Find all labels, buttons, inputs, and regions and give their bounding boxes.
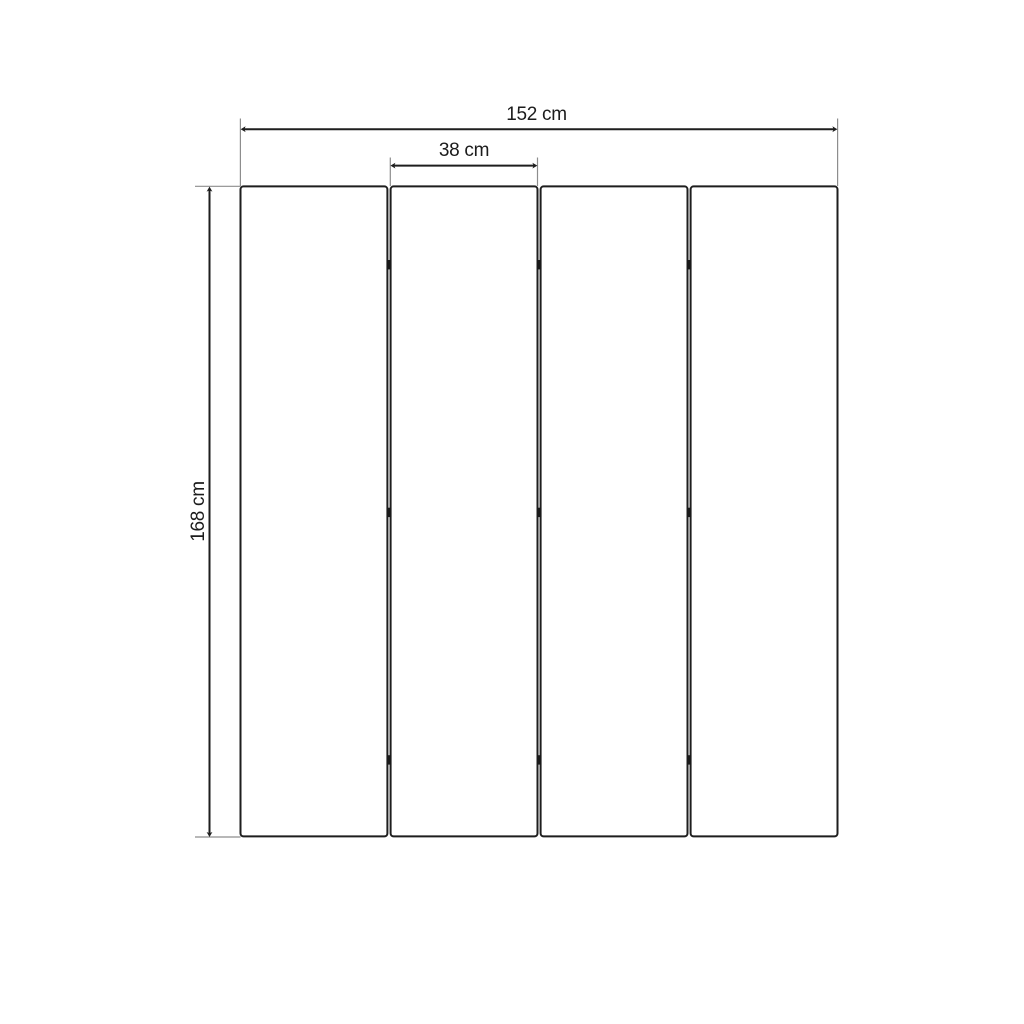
svg-text:168 cm: 168 cm xyxy=(188,481,209,542)
svg-text:152 cm: 152 cm xyxy=(506,104,567,125)
svg-text:38 cm: 38 cm xyxy=(439,140,489,161)
